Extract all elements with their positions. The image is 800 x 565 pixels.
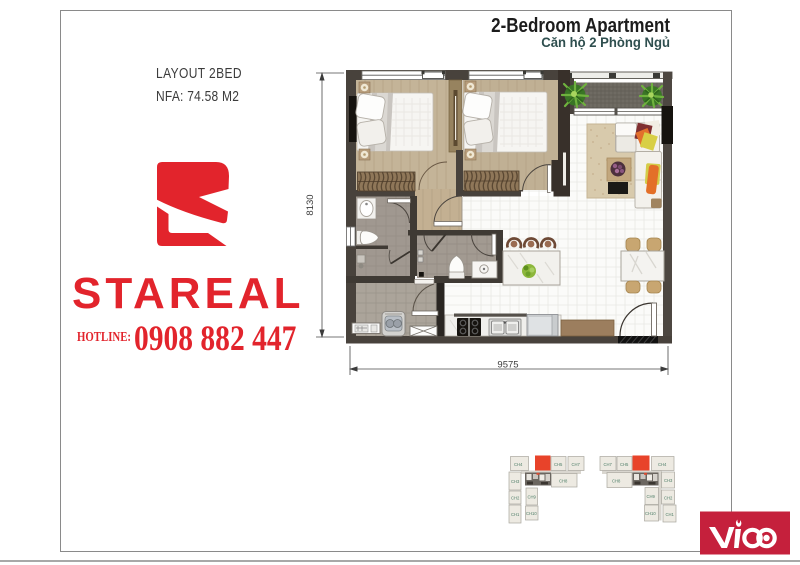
svg-text:CH1: CH1 <box>511 512 520 517</box>
svg-text:CH2: CH2 <box>664 496 673 501</box>
svg-text:8130: 8130 <box>305 194 316 215</box>
svg-text:CH7: CH7 <box>572 462 581 467</box>
svg-text:CH9: CH9 <box>528 495 537 500</box>
svg-text:CH3: CH3 <box>511 479 520 484</box>
svg-text:CH4: CH4 <box>514 462 523 467</box>
svg-text:CH9: CH9 <box>647 494 656 499</box>
svg-text:CH4: CH4 <box>658 462 667 467</box>
svg-text:CH2: CH2 <box>511 496 520 501</box>
svg-text:CH10: CH10 <box>645 511 656 516</box>
svg-text:CH10: CH10 <box>526 511 537 516</box>
svg-text:CH5: CH5 <box>554 462 563 467</box>
svg-text:9575: 9575 <box>497 360 518 371</box>
svg-text:CH3: CH3 <box>664 478 673 483</box>
svg-text:CH5: CH5 <box>620 462 629 467</box>
svg-text:CH7: CH7 <box>604 462 613 467</box>
svg-text:CH8: CH8 <box>612 479 621 484</box>
svg-text:CH1: CH1 <box>666 512 675 517</box>
svg-text:CH8: CH8 <box>559 479 568 484</box>
